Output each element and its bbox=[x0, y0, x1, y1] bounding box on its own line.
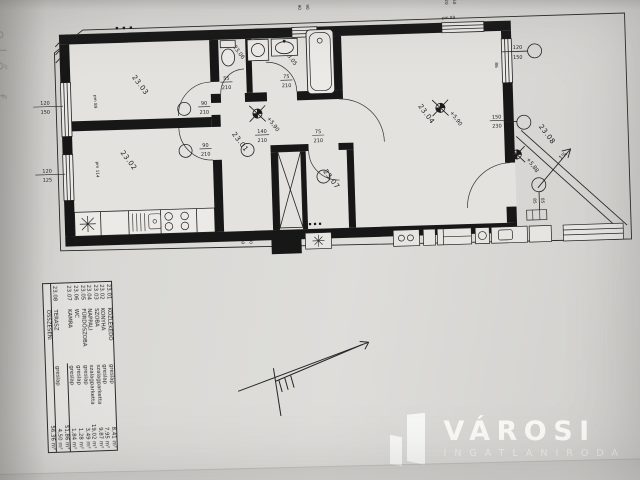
dim-door-living-w: 140 bbox=[257, 129, 267, 135]
dim-door-living-h: 210 bbox=[257, 138, 267, 144]
legend-subtotal: 51,86 m² bbox=[62, 414, 70, 452]
dim-win-left2-pm: pm 114 bbox=[95, 162, 101, 179]
dim-win-left1-h: 150 bbox=[40, 110, 50, 116]
dim-win-left1-pm: pm 89 bbox=[93, 95, 98, 109]
legend-terrace-no: 23.08 bbox=[50, 283, 58, 307]
legend-room-area: 1,28 m² bbox=[76, 414, 84, 452]
dim-door-kitchen-h: 210 bbox=[201, 152, 211, 158]
agency-subtitle: INGATLANIRODA bbox=[444, 448, 626, 459]
kitchen-counter bbox=[74, 208, 215, 236]
dim-step-a: 85 bbox=[532, 198, 537, 204]
dim-door-terrace-w: 150 bbox=[492, 114, 502, 120]
dim-win-topright-a: 120 bbox=[444, 0, 449, 5]
legend-room-no: 23.03 bbox=[91, 282, 98, 306]
bathtub bbox=[306, 29, 335, 94]
legend-room-area: 3,49 m² bbox=[83, 413, 91, 451]
dim-win-right-h: 150 bbox=[513, 55, 523, 61]
dim-win-right-side: 86 bbox=[494, 62, 499, 68]
dim-door-bath-w: 75 bbox=[283, 74, 290, 80]
dim-door-szoba-w: 90 bbox=[201, 101, 208, 107]
legend-room-no: 23.07 bbox=[64, 283, 72, 307]
dim-door-wc-w: 55 bbox=[223, 76, 230, 82]
scanned-floorplan-page: elő f bbox=[0, 0, 640, 480]
dim-win-top-a: 90 bbox=[297, 4, 302, 10]
dim-bottom-a: 160 bbox=[240, 236, 245, 244]
legend-room-area: 9,87 m² bbox=[96, 413, 104, 451]
dim-door-kitchen-w: 90 bbox=[202, 143, 209, 149]
legend-room-no: 23.04 bbox=[85, 282, 92, 306]
agency-logo-text: VÁROSI INGATLANIRODA bbox=[444, 418, 626, 459]
legend-room-area: 8,41 m² bbox=[109, 412, 117, 450]
dim-door-wc-h: 210 bbox=[222, 85, 232, 91]
dim-door-bath-h: 210 bbox=[282, 83, 292, 89]
dim-door-kamra-w: 75 bbox=[315, 129, 322, 135]
legend-room-area: 1,84 m² bbox=[69, 414, 77, 452]
legend-room-no: 23.01 bbox=[104, 281, 112, 305]
dim-win-left1-w: 120 bbox=[40, 101, 50, 107]
legend-rows: 23.01 KÖZLEKEDŐ greslap 8,41 m² 23.02 KO… bbox=[64, 281, 117, 452]
dim-door-terrace-h: 230 bbox=[492, 123, 502, 129]
dim-win-top-b: 90 bbox=[305, 4, 310, 10]
dim-win-topright-b: 150 bbox=[452, 0, 457, 5]
dim-win-left2-h: 125 bbox=[43, 178, 53, 184]
dim-door-kamra-h: 210 bbox=[313, 138, 323, 144]
dim-step-b: 85 bbox=[540, 198, 545, 204]
sink-star-symbol bbox=[80, 216, 96, 232]
legend-terrace-area: 4,50 m² bbox=[55, 414, 63, 452]
level-terrace: +5,88 bbox=[525, 157, 540, 174]
dim-bottom-b: 230 bbox=[248, 236, 253, 244]
legend-room-no: 23.02 bbox=[98, 282, 105, 306]
legend-room-no: 23.06 bbox=[71, 282, 78, 306]
room-legend-table: 23.01 KÖZLEKEDŐ greslap 8,41 m² 23.02 KO… bbox=[42, 281, 118, 453]
wc-toilet bbox=[220, 40, 236, 66]
dim-win-right-w: 120 bbox=[513, 45, 523, 51]
washing-machine bbox=[247, 39, 269, 61]
bath-sink bbox=[271, 38, 298, 56]
legend-total: 56,36 m² bbox=[47, 414, 56, 452]
north-arrow bbox=[237, 341, 371, 417]
dim-win-left2-w: 120 bbox=[42, 169, 52, 175]
dim-door-szoba-h: 210 bbox=[200, 110, 210, 116]
legend-room-no: 23.05 bbox=[78, 282, 85, 306]
varosi-buildings-icon bbox=[389, 408, 431, 468]
room-label-terasz: 23.08 bbox=[537, 123, 557, 146]
dim-win-topright-pm: pm 89 bbox=[442, 15, 456, 20]
agency-name: VÁROSI bbox=[444, 418, 626, 445]
